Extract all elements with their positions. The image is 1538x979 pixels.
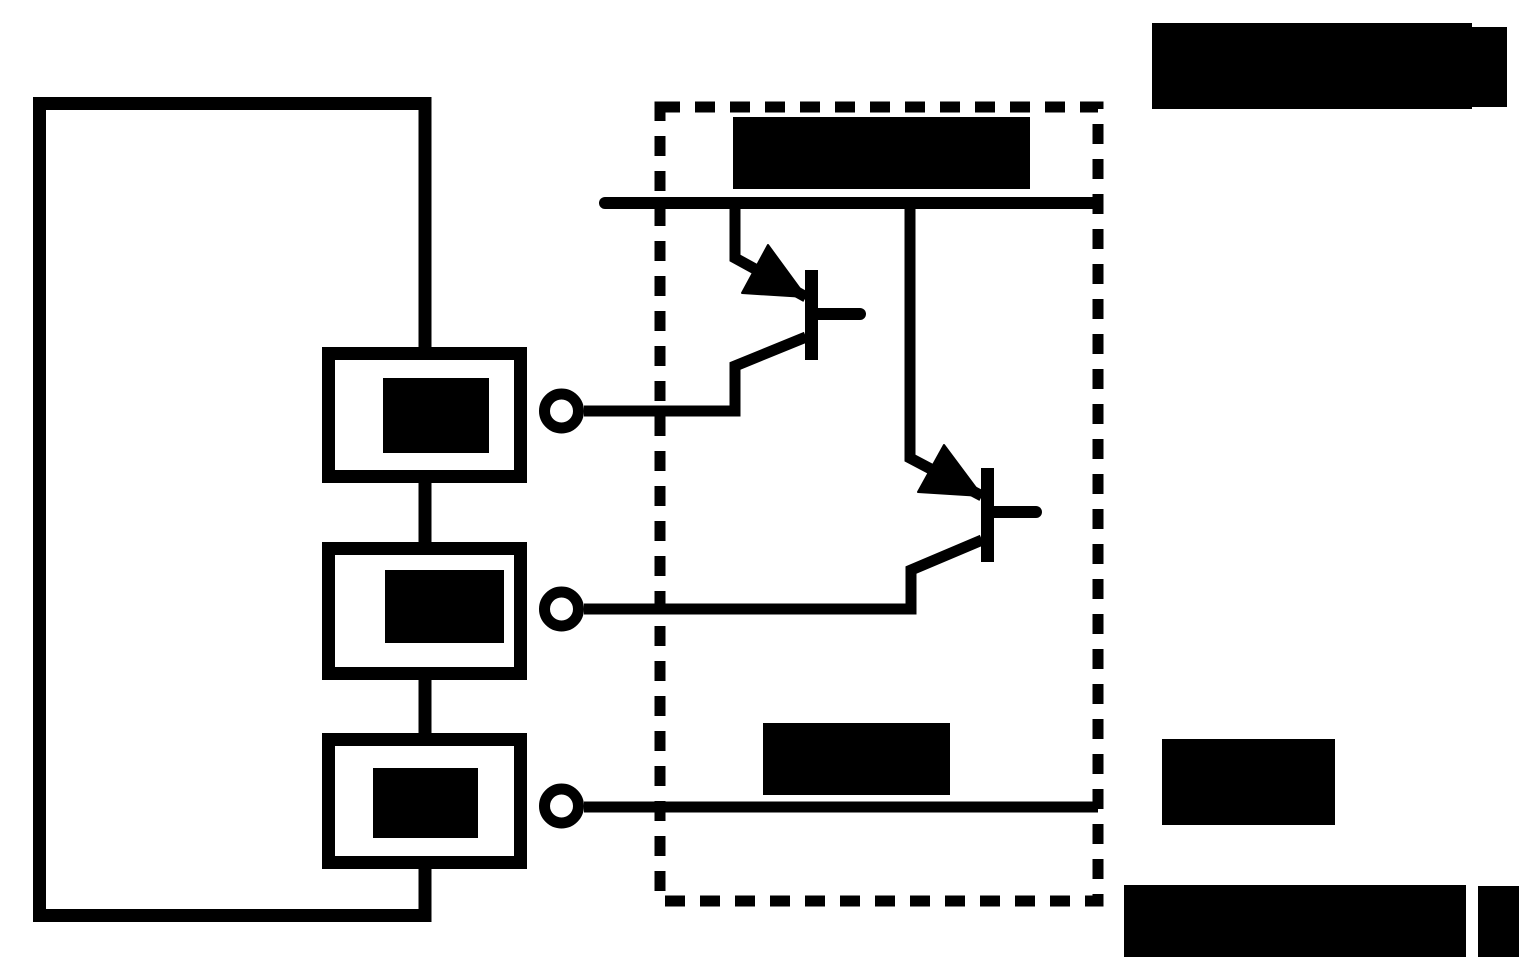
redacted-label-box-2 — [385, 570, 504, 643]
terminal-3 — [545, 789, 579, 823]
redacted-label-bottom-right-suffix — [1478, 886, 1519, 957]
wire-q1-to-terminal-1 — [584, 337, 806, 411]
terminal-1 — [545, 394, 579, 428]
terminal-2 — [545, 592, 579, 626]
redacted-label-box-3 — [373, 768, 478, 838]
redacted-label-top-right — [1152, 23, 1472, 109]
redacted-label-box-1 — [383, 378, 489, 453]
redacted-label-bottom-right — [1124, 885, 1466, 957]
circuit-figure — [0, 0, 1538, 979]
redacted-label-ic-bottom — [763, 723, 950, 795]
redacted-label-top-right-suffix — [1472, 27, 1507, 107]
redacted-label-mid-right — [1162, 739, 1335, 825]
wire-q2-to-terminal-2 — [584, 540, 982, 609]
redacted-label-ic-top — [733, 117, 1030, 189]
circuit-diagram — [0, 0, 1538, 979]
device-outline — [40, 104, 426, 916]
